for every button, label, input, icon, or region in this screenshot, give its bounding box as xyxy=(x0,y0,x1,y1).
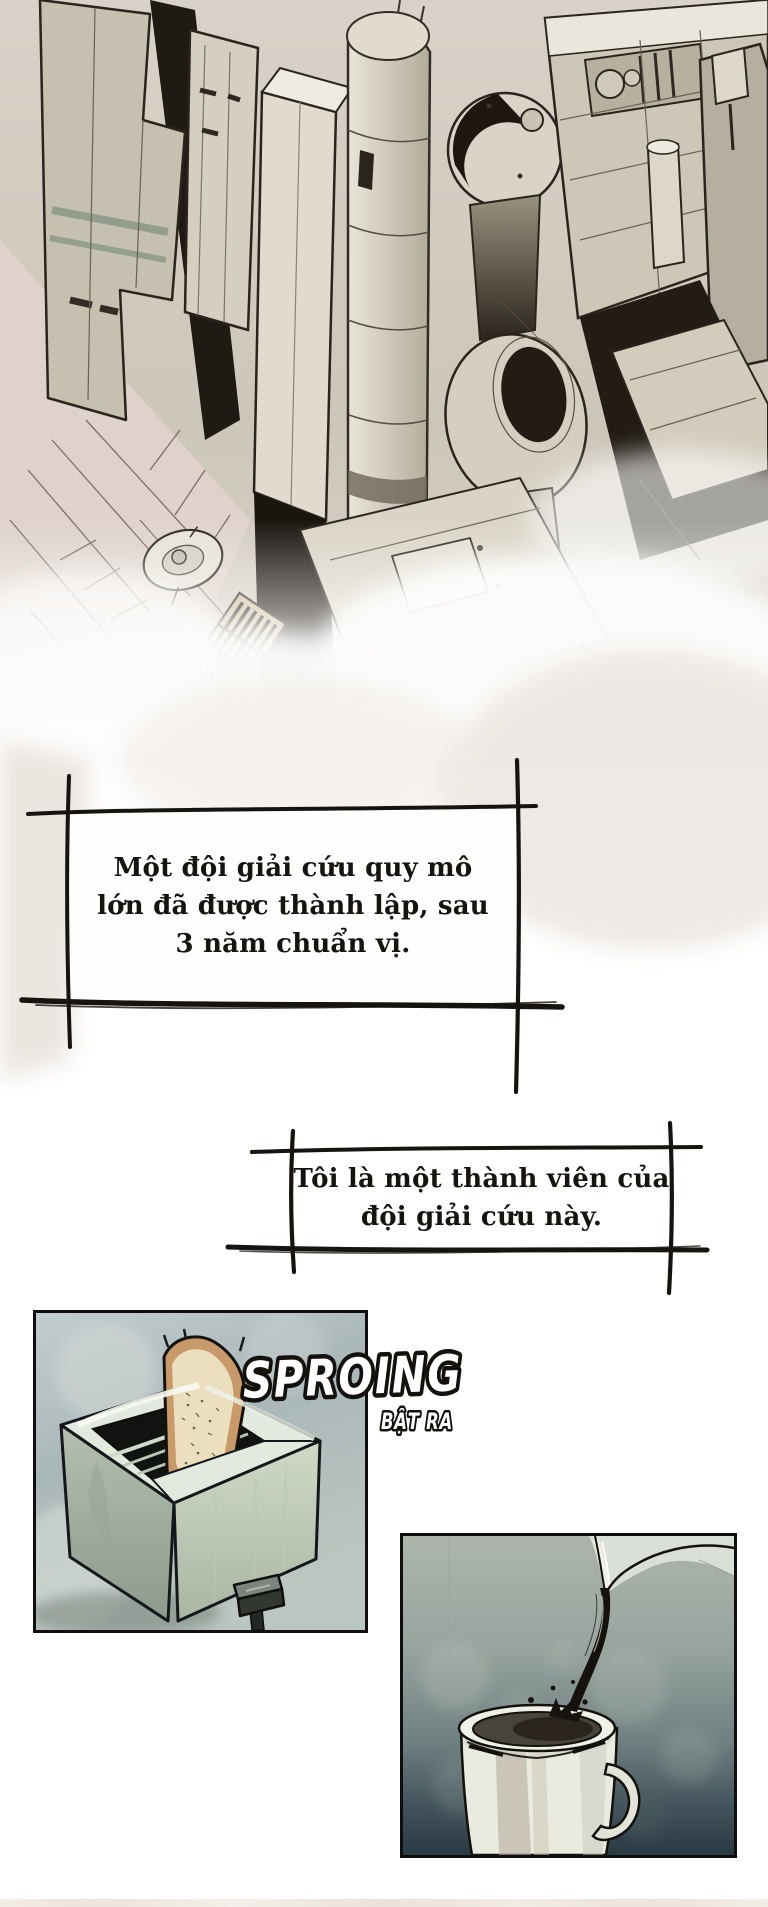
city-pod-waist xyxy=(470,195,540,340)
sfx-subtitle-text: BẬT RA xyxy=(381,1408,453,1435)
sfx-sproing-text: SPROING xyxy=(242,1344,464,1410)
next-panel-top-sliver xyxy=(0,1899,768,1907)
narration-line: Tôi là một thành viên của xyxy=(293,1160,670,1198)
city-tower-2 xyxy=(185,30,258,330)
narration-line: lớn đã được thành lập, sau xyxy=(69,887,517,925)
narration-line: Một đội giải cứu quy mô xyxy=(69,849,517,887)
narration-box-2-text: Tôi là một thành viên của đội giải cứu n… xyxy=(293,1160,670,1236)
city-sphere-pod xyxy=(448,93,562,207)
mug xyxy=(459,1705,639,1855)
comic-page: Một đội giải cứu quy mô lớn đã được thàn… xyxy=(0,0,768,1907)
narration-line: 3 năm chuẩn vị. xyxy=(69,925,517,963)
narration-line: đội giải cứu này. xyxy=(293,1198,670,1236)
narration-box-1-text: Một đội giải cứu quy mô lớn đã được thàn… xyxy=(69,849,517,963)
sfx-overlay: SPROING BẬT RA xyxy=(195,1332,495,1437)
milk-panel-illustration xyxy=(400,1533,737,1858)
